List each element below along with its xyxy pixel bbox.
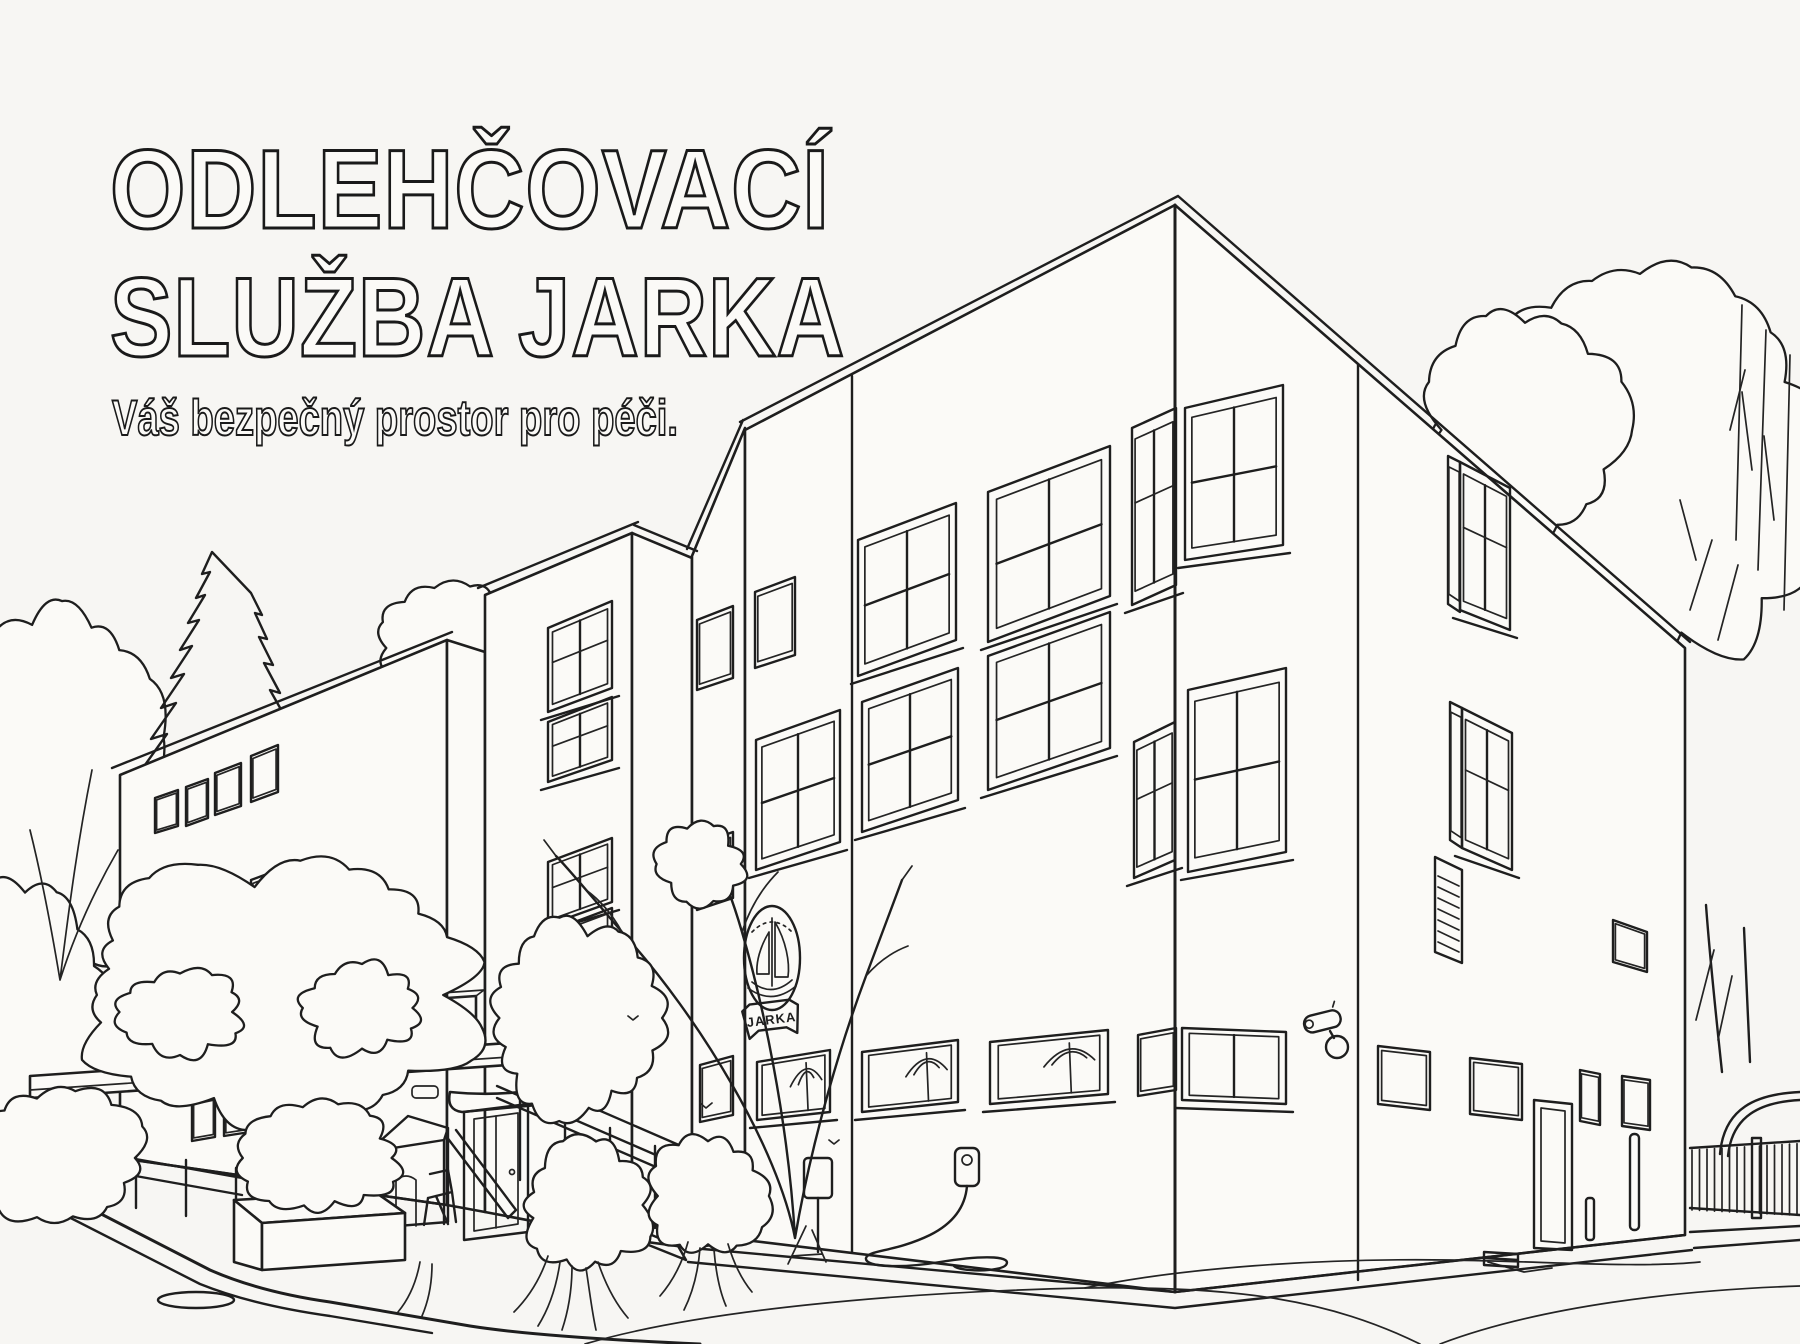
title-line-1: ODLEHČOVACÍ: [110, 127, 832, 252]
title-line-2: SLUŽBA JARKA: [110, 255, 845, 380]
picket-fence: [1690, 1092, 1800, 1218]
right-tree-trunks: [1696, 905, 1750, 1072]
subtitle: Váš bezpečný prostor pro péči.: [112, 390, 678, 446]
connector-wall: [447, 640, 485, 1212]
bush-left-icon: [0, 1087, 147, 1223]
line-art-illustration: JARKA: [0, 0, 1800, 1344]
coloring-page: JARKA: [0, 0, 1800, 1344]
header: ODLEHČOVACÍ SLUŽBA JARKA Váš bezpečný pr…: [110, 127, 845, 446]
manhole-cover-icon: [158, 1292, 234, 1308]
